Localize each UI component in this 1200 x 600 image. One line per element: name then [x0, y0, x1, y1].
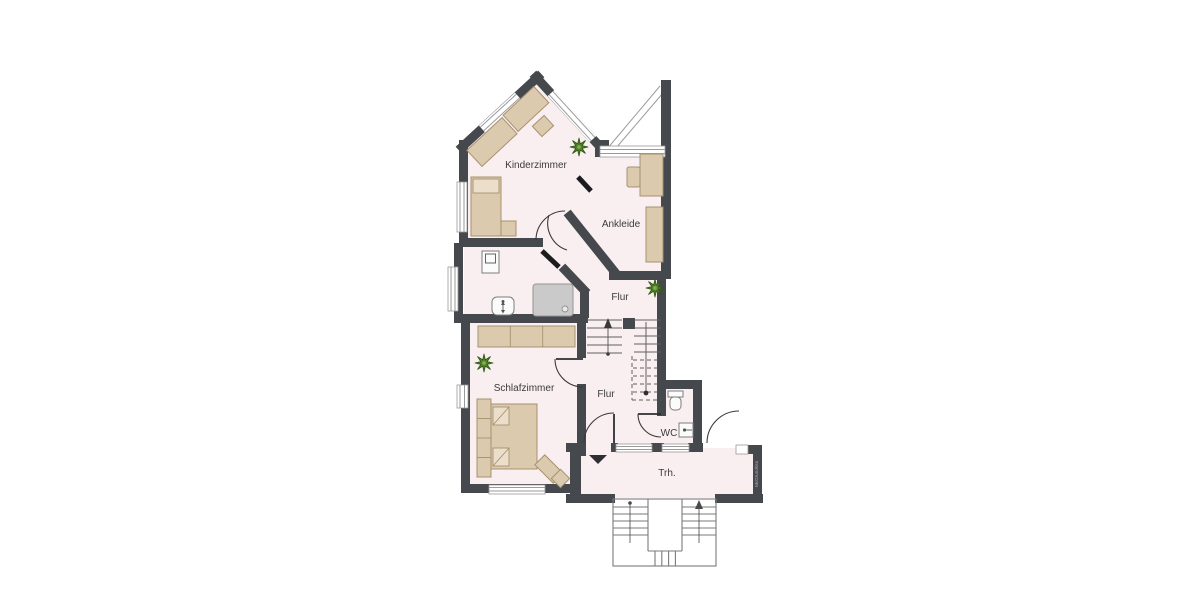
washbasin-icon	[492, 297, 514, 315]
wall-right-stair	[657, 277, 666, 389]
plant-icon	[570, 138, 588, 156]
shower-drain	[562, 306, 568, 312]
window-wc-south	[662, 444, 689, 452]
room-label-treppenhaus: Trh.	[658, 468, 675, 479]
wall-wc-west	[657, 388, 666, 416]
wardrobe-icon	[478, 326, 575, 347]
wall-bath-east	[580, 289, 589, 318]
wardrobe-icon	[646, 207, 663, 262]
wall-trh-south-left	[566, 494, 615, 503]
floorplan-page: Kinderzimmer Ankleide Flur Schlafzimmer …	[0, 0, 1200, 600]
desk-icon	[640, 154, 663, 196]
chair-icon	[627, 167, 640, 187]
bed-double-icon	[477, 399, 537, 477]
toilet-icon	[668, 391, 683, 410]
room-label-flur-upper: Flur	[611, 292, 629, 303]
room-label-ankleide: Ankleide	[602, 219, 641, 230]
room-label-flur-lower: Flur	[597, 389, 615, 400]
window-schlafzimmer-west	[457, 385, 468, 408]
wall-ankleide-south	[609, 271, 666, 280]
sink-icon	[679, 423, 693, 437]
wall-trh-south-right	[715, 494, 763, 503]
wall-east-upper	[577, 315, 586, 358]
exterior-staircase	[613, 499, 716, 566]
plant-icon	[646, 279, 664, 297]
nightstand-icon	[501, 221, 516, 236]
room-label-schlafzimmer: Schlafzimmer	[494, 383, 555, 394]
wall-kinderzimmer-south	[459, 238, 543, 247]
wall-trh-top-3	[688, 443, 703, 452]
floorplan-drawing: Kinderzimmer Ankleide Flur Schlafzimmer …	[0, 0, 1200, 600]
room-label-wc: WC	[661, 428, 678, 439]
window-schlafzimmer-south	[489, 485, 545, 494]
window-trh-top-1	[616, 444, 652, 452]
entry-door-panel	[736, 445, 748, 454]
watermark: McGrundriss	[754, 460, 759, 487]
window-bath-west	[448, 267, 458, 311]
roof-glazing	[607, 86, 663, 155]
wall-wc-east	[693, 380, 702, 452]
wall-stair-stub	[623, 318, 635, 329]
entry-door-arc	[707, 411, 739, 443]
window-kinderzimmer-west	[457, 182, 467, 232]
bed-single-icon	[471, 177, 501, 236]
plant-icon	[475, 354, 493, 372]
room-label-kinderzimmer: Kinderzimmer	[505, 160, 567, 171]
